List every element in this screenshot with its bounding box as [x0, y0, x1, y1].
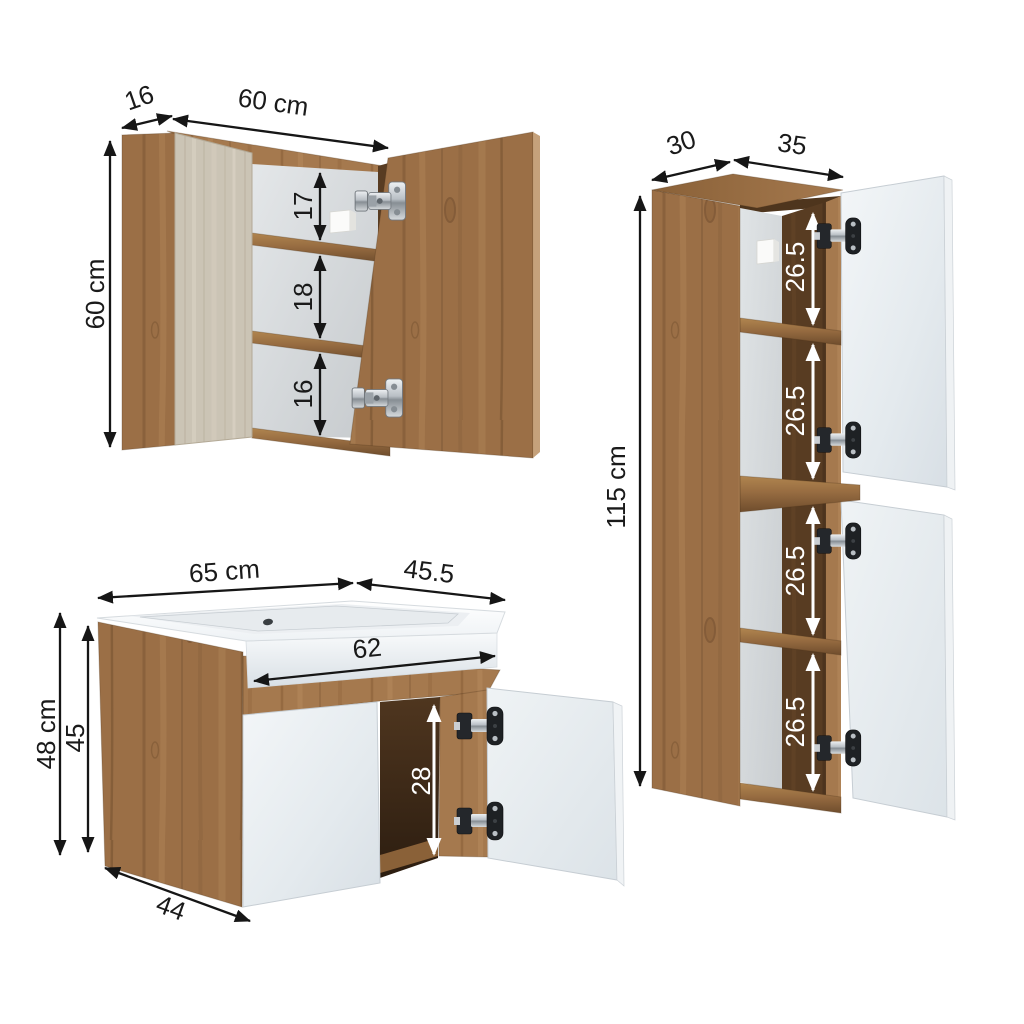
dim-label-shelf-1: 17: [288, 192, 318, 221]
vanity-side-panel: [98, 622, 243, 907]
dim-label-vanity-width: 65 cm: [188, 554, 261, 589]
dim-label-tall-height: 115 cm: [601, 445, 631, 528]
dim-label-vanity-depth: 45.5: [402, 553, 456, 589]
dim-vanity-body-height: 45: [60, 626, 90, 852]
dim-vanity-width: 65 cm: [98, 554, 353, 598]
vanity-right-door: [487, 688, 617, 880]
dim-label-mirror-height: 60 cm: [80, 259, 110, 330]
dim-label-section-3: 26.5: [780, 546, 810, 597]
dim-tall-depth: 30: [652, 124, 730, 180]
dim-label-section-4: 26.5: [780, 697, 810, 748]
mirror-cabinet-open-door-edge: [533, 132, 540, 458]
mirror-cabinet-side-panel: [122, 133, 175, 450]
dim-vanity-depth: 45.5: [357, 553, 505, 600]
dim-label-body-height: 45: [60, 724, 90, 753]
dim-label-vanity-height: 48 cm: [31, 699, 61, 770]
dim-label-tall-width: 35: [776, 127, 809, 161]
vanity: 28 62 65 cm 45.5 48 cm: [31, 553, 624, 926]
dim-label-bottom-depth: 44: [152, 889, 189, 927]
tall-cabinet-front-frame: [826, 196, 841, 812]
dim-mirror-height: 60 cm: [80, 141, 110, 447]
mirror-cabinet-mirror-door: [175, 133, 252, 445]
dim-vanity-height: 48 cm: [31, 613, 61, 855]
dim-label-mirror-depth: 16: [121, 79, 158, 117]
dim-label-section-2: 26.5: [780, 386, 810, 437]
tall-cabinet-side-panel: [652, 190, 740, 806]
vanity-left-door: [243, 702, 380, 907]
dim-label-basin-width: 62: [351, 632, 383, 665]
dim-label-section-1: 26.5: [780, 242, 810, 293]
mirror-cabinet: 60 cm 60 cm 16 17 18 16: [80, 79, 540, 458]
dim-label-tall-depth: 30: [663, 124, 700, 162]
dim-label-opening: 28: [406, 767, 436, 796]
dim-tall-width: 35: [734, 127, 843, 177]
dim-label-shelf-3: 16: [288, 380, 318, 409]
dim-label-mirror-width: 60 cm: [236, 82, 310, 122]
diagram-canvas: 60 cm 60 cm 16 17 18 16 28: [0, 0, 1024, 1024]
dim-mirror-depth: 16: [121, 79, 172, 128]
dim-tall-height: 115 cm: [601, 196, 640, 786]
tall-cabinet: 26.5 26.5 26.5 26.5 30 35: [601, 124, 955, 820]
door-catch: [757, 239, 779, 264]
door-catch: [330, 210, 356, 233]
dim-label-shelf-2: 18: [288, 283, 318, 312]
bathroom-furniture-dimension-diagram: 60 cm 60 cm 16 17 18 16 28: [0, 0, 1024, 1024]
